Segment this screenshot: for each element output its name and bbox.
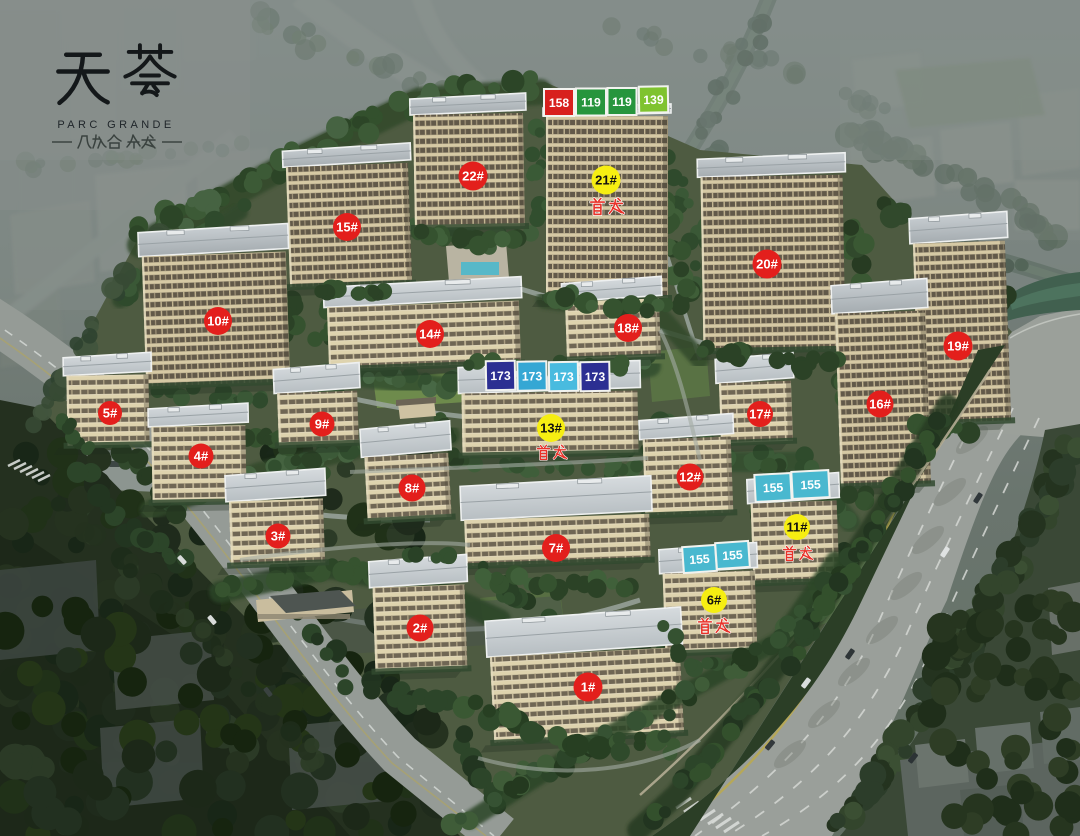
svg-text:119: 119 xyxy=(612,95,632,109)
svg-text:21#: 21# xyxy=(595,173,617,188)
svg-text:119: 119 xyxy=(581,95,601,109)
svg-text:1#: 1# xyxy=(581,680,596,695)
svg-text:17#: 17# xyxy=(749,407,771,422)
svg-text:18#: 18# xyxy=(617,321,639,336)
svg-text:15#: 15# xyxy=(336,220,358,235)
svg-text:10#: 10# xyxy=(207,314,229,329)
svg-text:173: 173 xyxy=(490,369,511,383)
svg-text:12#: 12# xyxy=(679,470,701,485)
svg-text:139: 139 xyxy=(643,93,664,107)
svg-text:155: 155 xyxy=(800,477,821,492)
svg-text:158: 158 xyxy=(549,96,570,110)
svg-text:155: 155 xyxy=(722,548,743,563)
svg-text:22#: 22# xyxy=(462,169,484,184)
svg-text:11#: 11# xyxy=(787,520,809,535)
svg-text:173: 173 xyxy=(553,370,574,384)
svg-text:6#: 6# xyxy=(707,593,722,608)
svg-text:20#: 20# xyxy=(756,257,778,272)
svg-text:4#: 4# xyxy=(194,449,209,464)
svg-text:173: 173 xyxy=(585,370,606,384)
svg-text:3#: 3# xyxy=(271,529,286,544)
svg-text:155: 155 xyxy=(762,480,783,495)
svg-text:173: 173 xyxy=(522,369,543,383)
svg-text:2#: 2# xyxy=(413,621,428,636)
svg-text:8#: 8# xyxy=(405,481,420,496)
svg-text:14#: 14# xyxy=(419,327,441,342)
svg-text:19#: 19# xyxy=(947,339,969,354)
svg-text:5#: 5# xyxy=(103,406,118,421)
svg-text:13#: 13# xyxy=(540,421,562,436)
svg-text:7#: 7# xyxy=(549,541,564,556)
svg-text:16#: 16# xyxy=(869,397,891,412)
svg-text:PARC GRANDE: PARC GRANDE xyxy=(57,119,174,131)
svg-text:155: 155 xyxy=(689,552,710,567)
svg-text:9#: 9# xyxy=(315,417,330,432)
